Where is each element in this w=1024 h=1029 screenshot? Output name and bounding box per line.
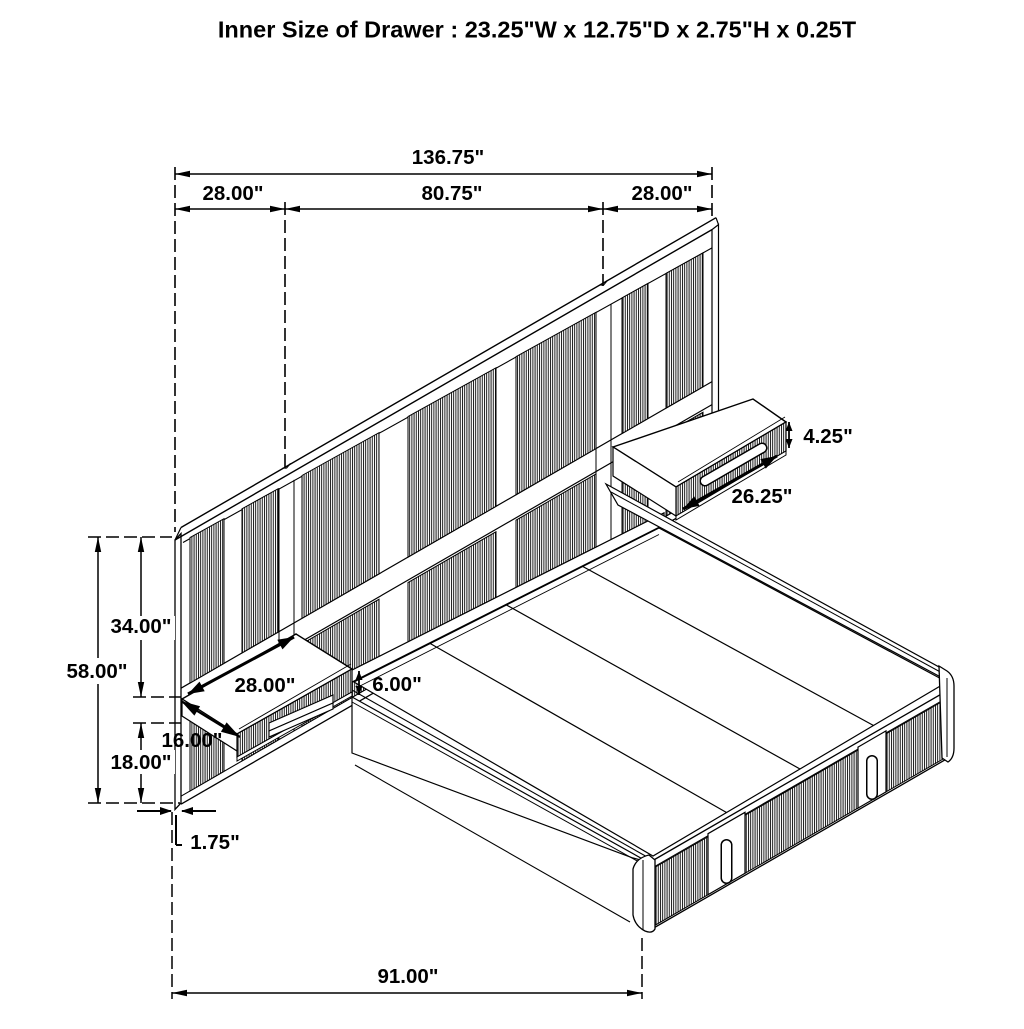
svg-text:1.75": 1.75" (190, 831, 240, 854)
svg-text:Inner Size of Drawer : 23.25"W: Inner Size of Drawer : 23.25"W x 12.75"D… (218, 17, 857, 43)
svg-text:4.25": 4.25" (803, 425, 853, 448)
svg-text:28.00": 28.00" (202, 182, 263, 205)
svg-text:6.00": 6.00" (372, 673, 422, 696)
svg-text:28.00": 28.00" (631, 182, 692, 205)
svg-text:26.25": 26.25" (731, 485, 792, 508)
svg-text:80.75": 80.75" (421, 182, 482, 205)
svg-text:34.00": 34.00" (110, 615, 171, 638)
svg-text:58.00": 58.00" (66, 660, 127, 683)
svg-text:91.00": 91.00" (377, 965, 438, 988)
svg-text:136.75": 136.75" (412, 146, 484, 169)
svg-text:16.00": 16.00" (161, 729, 222, 752)
svg-text:28.00": 28.00" (234, 674, 295, 697)
svg-text:18.00": 18.00" (110, 751, 171, 774)
